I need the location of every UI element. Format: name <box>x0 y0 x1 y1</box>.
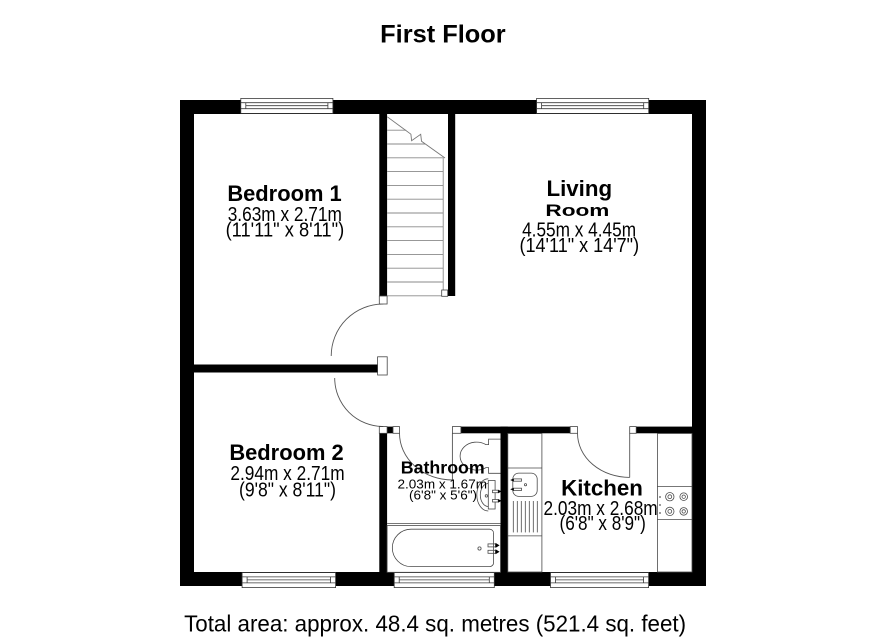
svg-text:Total area: approx. 48.4 sq. m: Total area: approx. 48.4 sq. metres (521… <box>184 611 686 637</box>
svg-text:(6'8" x 5'6"): (6'8" x 5'6") <box>409 488 477 503</box>
svg-text:Room: Room <box>545 202 609 220</box>
svg-text:Bedroom 2: Bedroom 2 <box>229 440 343 465</box>
svg-text:(11'11" x 8'11"): (11'11" x 8'11") <box>226 220 345 242</box>
svg-text:(6'8" x 8'9"): (6'8" x 8'9") <box>560 513 646 535</box>
svg-text:(14'11" x 14'7"): (14'11" x 14'7") <box>520 235 640 257</box>
svg-text:(9'8" x 8'11"): (9'8" x 8'11") <box>239 479 336 501</box>
svg-text:Bedroom 1: Bedroom 1 <box>227 181 341 206</box>
svg-text:Living: Living <box>546 176 612 201</box>
svg-text:Bathroom: Bathroom <box>401 457 485 477</box>
svg-text:First Floor: First Floor <box>380 21 506 49</box>
